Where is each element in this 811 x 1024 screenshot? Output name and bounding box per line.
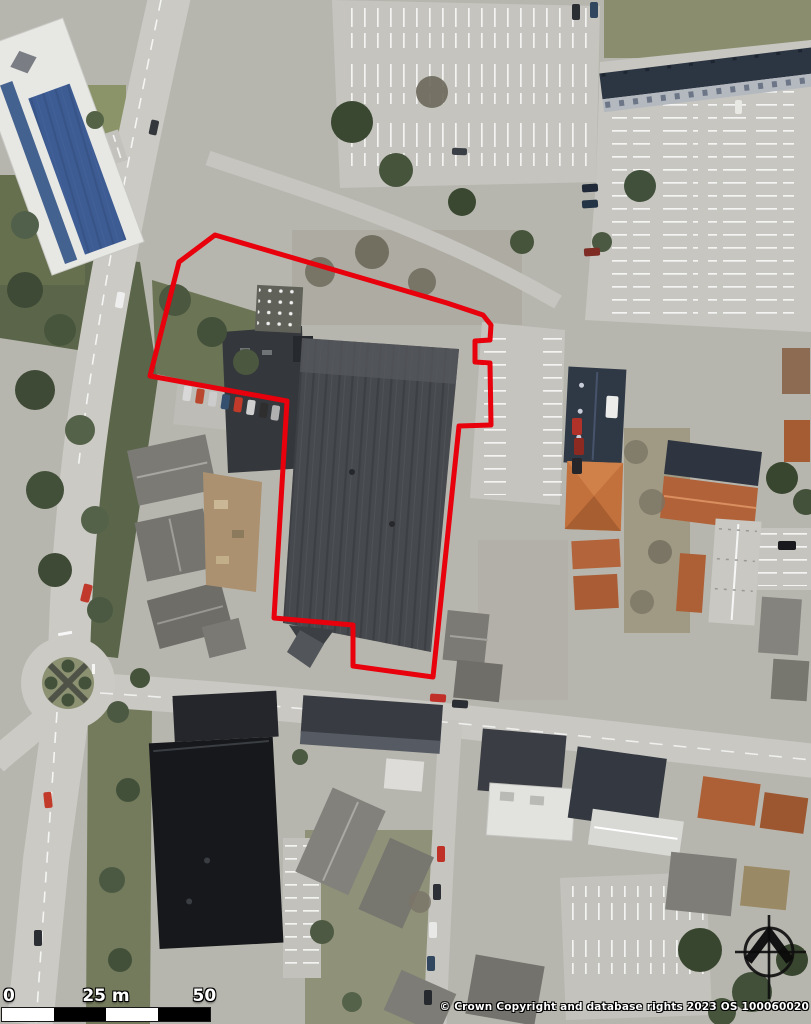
scale-segment	[2, 1008, 54, 1021]
aerial-photo	[0, 0, 811, 1024]
scale-bar-segments	[2, 1008, 210, 1021]
scale-segment	[158, 1008, 210, 1021]
copyright-text: © Crown Copyright and database rights 20…	[440, 1001, 809, 1013]
north-arrow-icon	[732, 913, 810, 1003]
scale-label-25m: 25 m	[82, 988, 129, 1005]
white-van	[605, 396, 618, 419]
scale-segment	[54, 1008, 106, 1021]
scale-segment	[106, 1008, 158, 1021]
aerial-map-image: 0 25 m 50 m © Crown Copyright and databa…	[0, 0, 811, 1024]
scale-label-0: 0	[3, 988, 15, 1005]
building-white-flats	[486, 783, 575, 841]
scale-bar: 0 25 m 50 m	[2, 988, 242, 1024]
container-stack	[255, 285, 303, 333]
building-terrace-street-left	[300, 695, 443, 754]
